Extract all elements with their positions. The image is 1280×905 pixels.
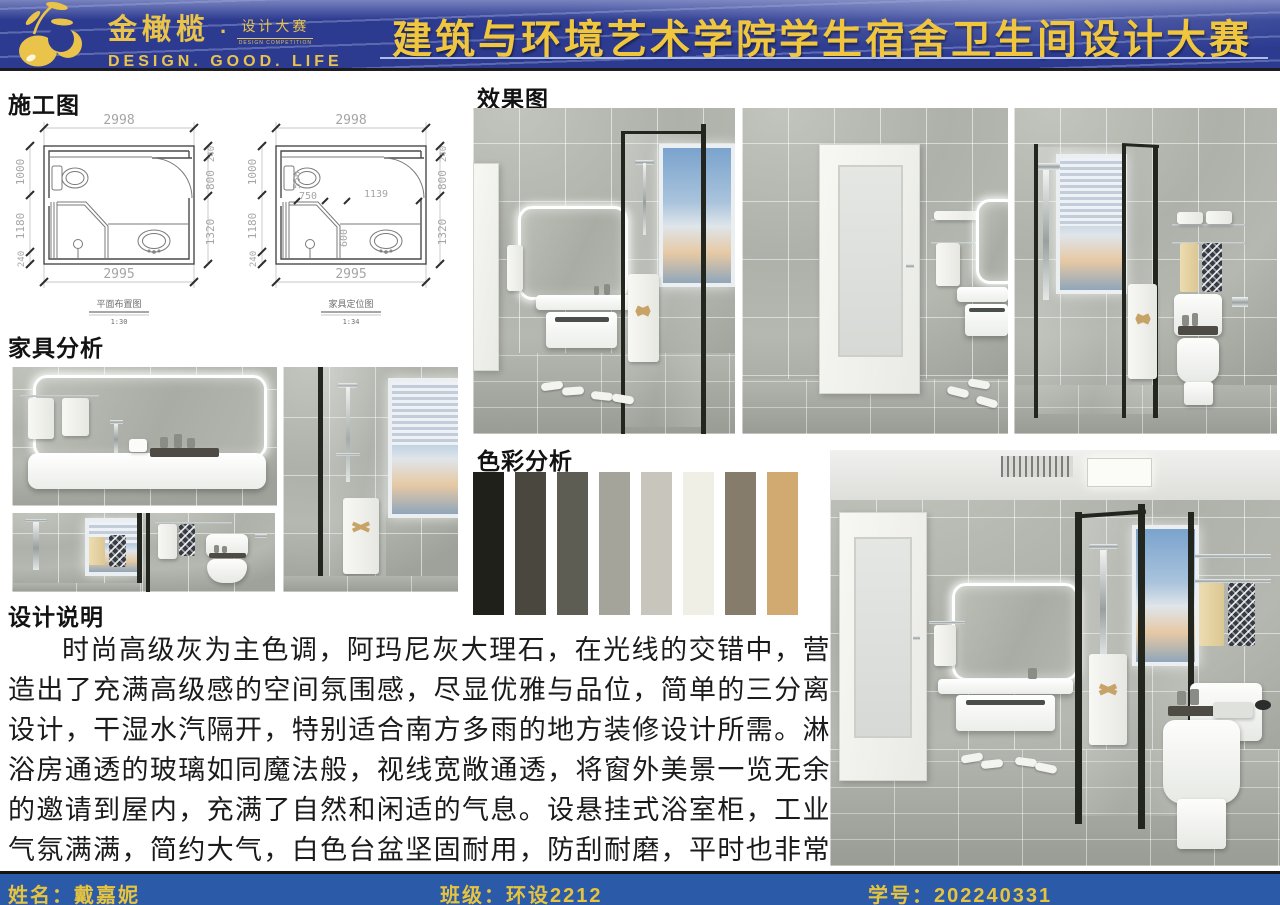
led-mirror xyxy=(518,206,629,300)
led-mirror-edge xyxy=(976,199,1008,283)
washbasin-counter xyxy=(957,287,1008,302)
led-mirror xyxy=(952,583,1080,681)
color-palette xyxy=(473,472,798,615)
toiletry-bottle xyxy=(1192,313,1198,327)
toilet-bowl xyxy=(1163,720,1240,803)
beige-towel xyxy=(89,537,105,565)
window-blinds xyxy=(1060,158,1123,227)
ceiling-light xyxy=(1087,458,1152,487)
toiletry-bottle xyxy=(1190,689,1199,706)
svg-text:600: 600 xyxy=(339,229,350,247)
glass-frame xyxy=(1034,144,1038,418)
svg-text:240: 240 xyxy=(207,146,217,162)
hanging-towel xyxy=(28,398,55,440)
towel-rail xyxy=(929,621,965,624)
towel-shelf xyxy=(1195,554,1272,558)
svg-text:2998: 2998 xyxy=(103,113,134,128)
shower-column xyxy=(1100,550,1106,658)
toiletry-bottle xyxy=(1028,668,1037,679)
ceiling-vent xyxy=(1001,456,1073,477)
brand-subtitle: 设计大赛 xyxy=(241,16,309,36)
toiletry-bottle xyxy=(214,545,219,554)
washbasin-counter xyxy=(536,295,633,310)
brand-name: 金橄榄 xyxy=(108,6,210,48)
beige-towel xyxy=(1180,243,1198,292)
title-underline xyxy=(380,57,1268,59)
svg-text:1320: 1320 xyxy=(204,219,217,246)
brand-tagline: DESIGN. GOOD. LIFE xyxy=(108,53,343,71)
competition-poster: 金橄榄 · 设计大赛 DESIGN COMPETITION DESIGN. GO… xyxy=(0,0,1280,905)
color-swatch xyxy=(473,472,504,615)
shower-head xyxy=(25,519,46,522)
door xyxy=(839,512,927,780)
door-frosted-panel xyxy=(838,165,903,357)
beige-towel xyxy=(1199,583,1224,645)
olive-branch-icon xyxy=(0,0,105,68)
folded-towels xyxy=(934,211,982,221)
toiletry-bottle xyxy=(1182,315,1188,326)
door-frosted-panel xyxy=(854,537,913,738)
golden-olive-logo: 金橄榄 · 设计大赛 DESIGN COMPETITION DESIGN. GO… xyxy=(0,0,372,68)
bath-towel xyxy=(1128,284,1157,379)
glass-frame xyxy=(1122,144,1126,418)
svg-text:800: 800 xyxy=(436,170,449,190)
svg-text:240: 240 xyxy=(17,251,27,267)
paper-holder xyxy=(1255,700,1270,710)
toiletry-tray xyxy=(1178,326,1217,334)
glass-frame xyxy=(146,513,150,592)
toilet-bowl xyxy=(207,559,247,583)
class-label: 班级： xyxy=(440,885,506,905)
color-swatch xyxy=(599,472,630,615)
vanity-cabinet xyxy=(965,304,1008,337)
svg-text:2998: 2998 xyxy=(335,113,366,128)
svg-text:2995: 2995 xyxy=(103,267,134,282)
hanging-towel xyxy=(936,243,960,285)
design-description: 时尚高级灰为主色调，阿玛尼灰大理石，在光线的交错中，营造出了充满高级感的空间氛围… xyxy=(8,630,830,905)
glass-frame xyxy=(621,131,625,434)
bath-towel xyxy=(1089,654,1127,746)
id-label: 学号： xyxy=(868,885,934,905)
bath-towel xyxy=(343,498,380,575)
brand-dot: · xyxy=(220,19,227,48)
svg-text:1320: 1320 xyxy=(436,219,449,246)
render-full-bathroom xyxy=(830,450,1280,866)
banner: 金橄榄 · 设计大赛 DESIGN COMPETITION DESIGN. GO… xyxy=(0,0,1280,71)
folded-towel xyxy=(1177,212,1203,223)
folded-towel xyxy=(1206,211,1232,224)
color-swatch xyxy=(557,472,588,615)
brand-subtitle-en: DESIGN COMPETITION xyxy=(239,40,312,46)
faucet xyxy=(114,423,118,454)
toiletry-bottle xyxy=(604,284,610,295)
folded-towel xyxy=(1213,702,1254,719)
glass-frame-top xyxy=(621,131,705,134)
faucet-spout xyxy=(110,420,123,424)
svg-text:1:34: 1:34 xyxy=(343,318,360,326)
slipper xyxy=(591,390,614,400)
name-label: 姓名： xyxy=(8,885,74,905)
toiletry-bottle xyxy=(222,546,227,553)
shower-head xyxy=(1036,163,1060,170)
svg-text:550: 550 xyxy=(292,171,303,189)
toilet-bowl xyxy=(1177,338,1219,384)
cabinet-handle xyxy=(966,700,1045,705)
svg-text:1000: 1000 xyxy=(246,159,259,186)
svg-text:平面布置图: 平面布置图 xyxy=(96,298,141,310)
washbasin-counter xyxy=(28,453,267,489)
towel-shelf xyxy=(1172,224,1246,227)
glass-frame xyxy=(1138,504,1144,828)
color-swatch xyxy=(767,472,798,615)
color-swatch xyxy=(683,472,714,615)
furniture-vanity-closeup xyxy=(12,367,277,506)
shower-pipe xyxy=(643,163,646,235)
svg-text:1180: 1180 xyxy=(246,213,259,240)
shower-head xyxy=(1089,544,1118,550)
cabinet-handle xyxy=(969,308,1005,313)
patterned-towel xyxy=(1202,243,1222,292)
window xyxy=(388,378,458,518)
svg-text:750: 750 xyxy=(299,191,317,202)
floor-plan-furniture: 2998 2995 1000 1180 240 240 800 1320 550… xyxy=(240,106,472,326)
patterned-towel xyxy=(109,535,126,567)
section-description-label: 设计说明 xyxy=(8,598,104,632)
section-palette-label: 色彩分析 xyxy=(477,442,573,476)
furniture-toilet-closeup xyxy=(142,513,275,592)
paper-holder xyxy=(255,534,267,539)
svg-text:240: 240 xyxy=(249,251,259,267)
vase xyxy=(129,439,148,452)
color-swatch xyxy=(641,472,672,615)
slipper xyxy=(562,386,585,396)
brand-divider xyxy=(237,38,313,39)
toiletry-bottle xyxy=(174,434,182,448)
render-door-view xyxy=(742,108,1008,434)
furniture-shower-window xyxy=(12,513,145,592)
bath-towel xyxy=(628,274,659,362)
svg-text:1:30: 1:30 xyxy=(111,318,128,326)
footer-bar: 姓名：戴嘉妮 班级：环设2212 学号：202240331 xyxy=(0,871,1280,905)
hand-towel xyxy=(934,625,957,667)
name-value: 戴嘉妮 xyxy=(74,885,140,905)
window xyxy=(659,144,735,287)
vanity-cabinet xyxy=(956,695,1055,730)
door xyxy=(473,163,499,370)
patterned-towel xyxy=(1228,583,1255,645)
toiletry-tray xyxy=(209,553,246,559)
patterned-towel xyxy=(179,524,195,556)
floor xyxy=(12,583,145,592)
floor-plan-layout: 2998 2995 1000 1180 240 240 800 1320 xyxy=(8,106,240,326)
svg-text:800: 800 xyxy=(204,170,217,190)
window-blinds xyxy=(392,382,458,445)
svg-text:2995: 2995 xyxy=(335,267,366,282)
floor xyxy=(283,576,458,592)
id-value: 202240331 xyxy=(934,885,1052,905)
section-furniture-label: 家具分析 xyxy=(8,329,104,363)
render-shower-toilet xyxy=(1014,108,1277,434)
toilet-base xyxy=(1177,799,1227,849)
svg-text:1000: 1000 xyxy=(14,159,27,186)
shower-column xyxy=(1043,170,1049,300)
washbasin-counter xyxy=(938,679,1073,694)
color-swatch xyxy=(725,472,756,615)
window xyxy=(1056,154,1127,294)
door xyxy=(819,144,919,394)
door-handle xyxy=(913,636,921,640)
vanity-cabinet xyxy=(546,312,617,348)
color-swatch xyxy=(515,472,546,615)
hanging-towel xyxy=(158,524,177,559)
hand-towel xyxy=(507,245,523,291)
toiletry-tray xyxy=(150,448,219,458)
student-class: 班级：环设2212 xyxy=(440,879,603,905)
svg-text:1180: 1180 xyxy=(14,213,27,240)
toilet-base xyxy=(1184,382,1213,405)
toiletry-bottle xyxy=(1177,691,1186,705)
hanging-towel xyxy=(62,398,89,437)
student-id: 学号：202240331 xyxy=(868,879,1052,905)
door-handle xyxy=(906,264,914,268)
student-name: 姓名：戴嘉妮 xyxy=(8,879,140,905)
towel-rail xyxy=(20,395,100,398)
furniture-shower-closeup xyxy=(283,367,458,592)
paper-holder xyxy=(1232,297,1248,307)
class-value: 环设2212 xyxy=(506,885,603,905)
svg-text:1139: 1139 xyxy=(364,189,388,200)
glass-frame xyxy=(1075,512,1081,824)
logo-text: 金橄榄 · 设计大赛 DESIGN COMPETITION DESIGN. GO… xyxy=(108,6,343,71)
toiletry-bottle xyxy=(594,286,600,296)
toiletry-bottle xyxy=(187,438,195,448)
shower-column xyxy=(33,521,38,570)
toiletry-bottle xyxy=(160,437,168,448)
glass-frame xyxy=(701,124,706,434)
svg-text:家具定位图: 家具定位图 xyxy=(328,298,373,310)
svg-text:240: 240 xyxy=(439,146,449,162)
render-vanity-shower xyxy=(473,108,735,434)
cabinet-handle xyxy=(555,317,609,322)
